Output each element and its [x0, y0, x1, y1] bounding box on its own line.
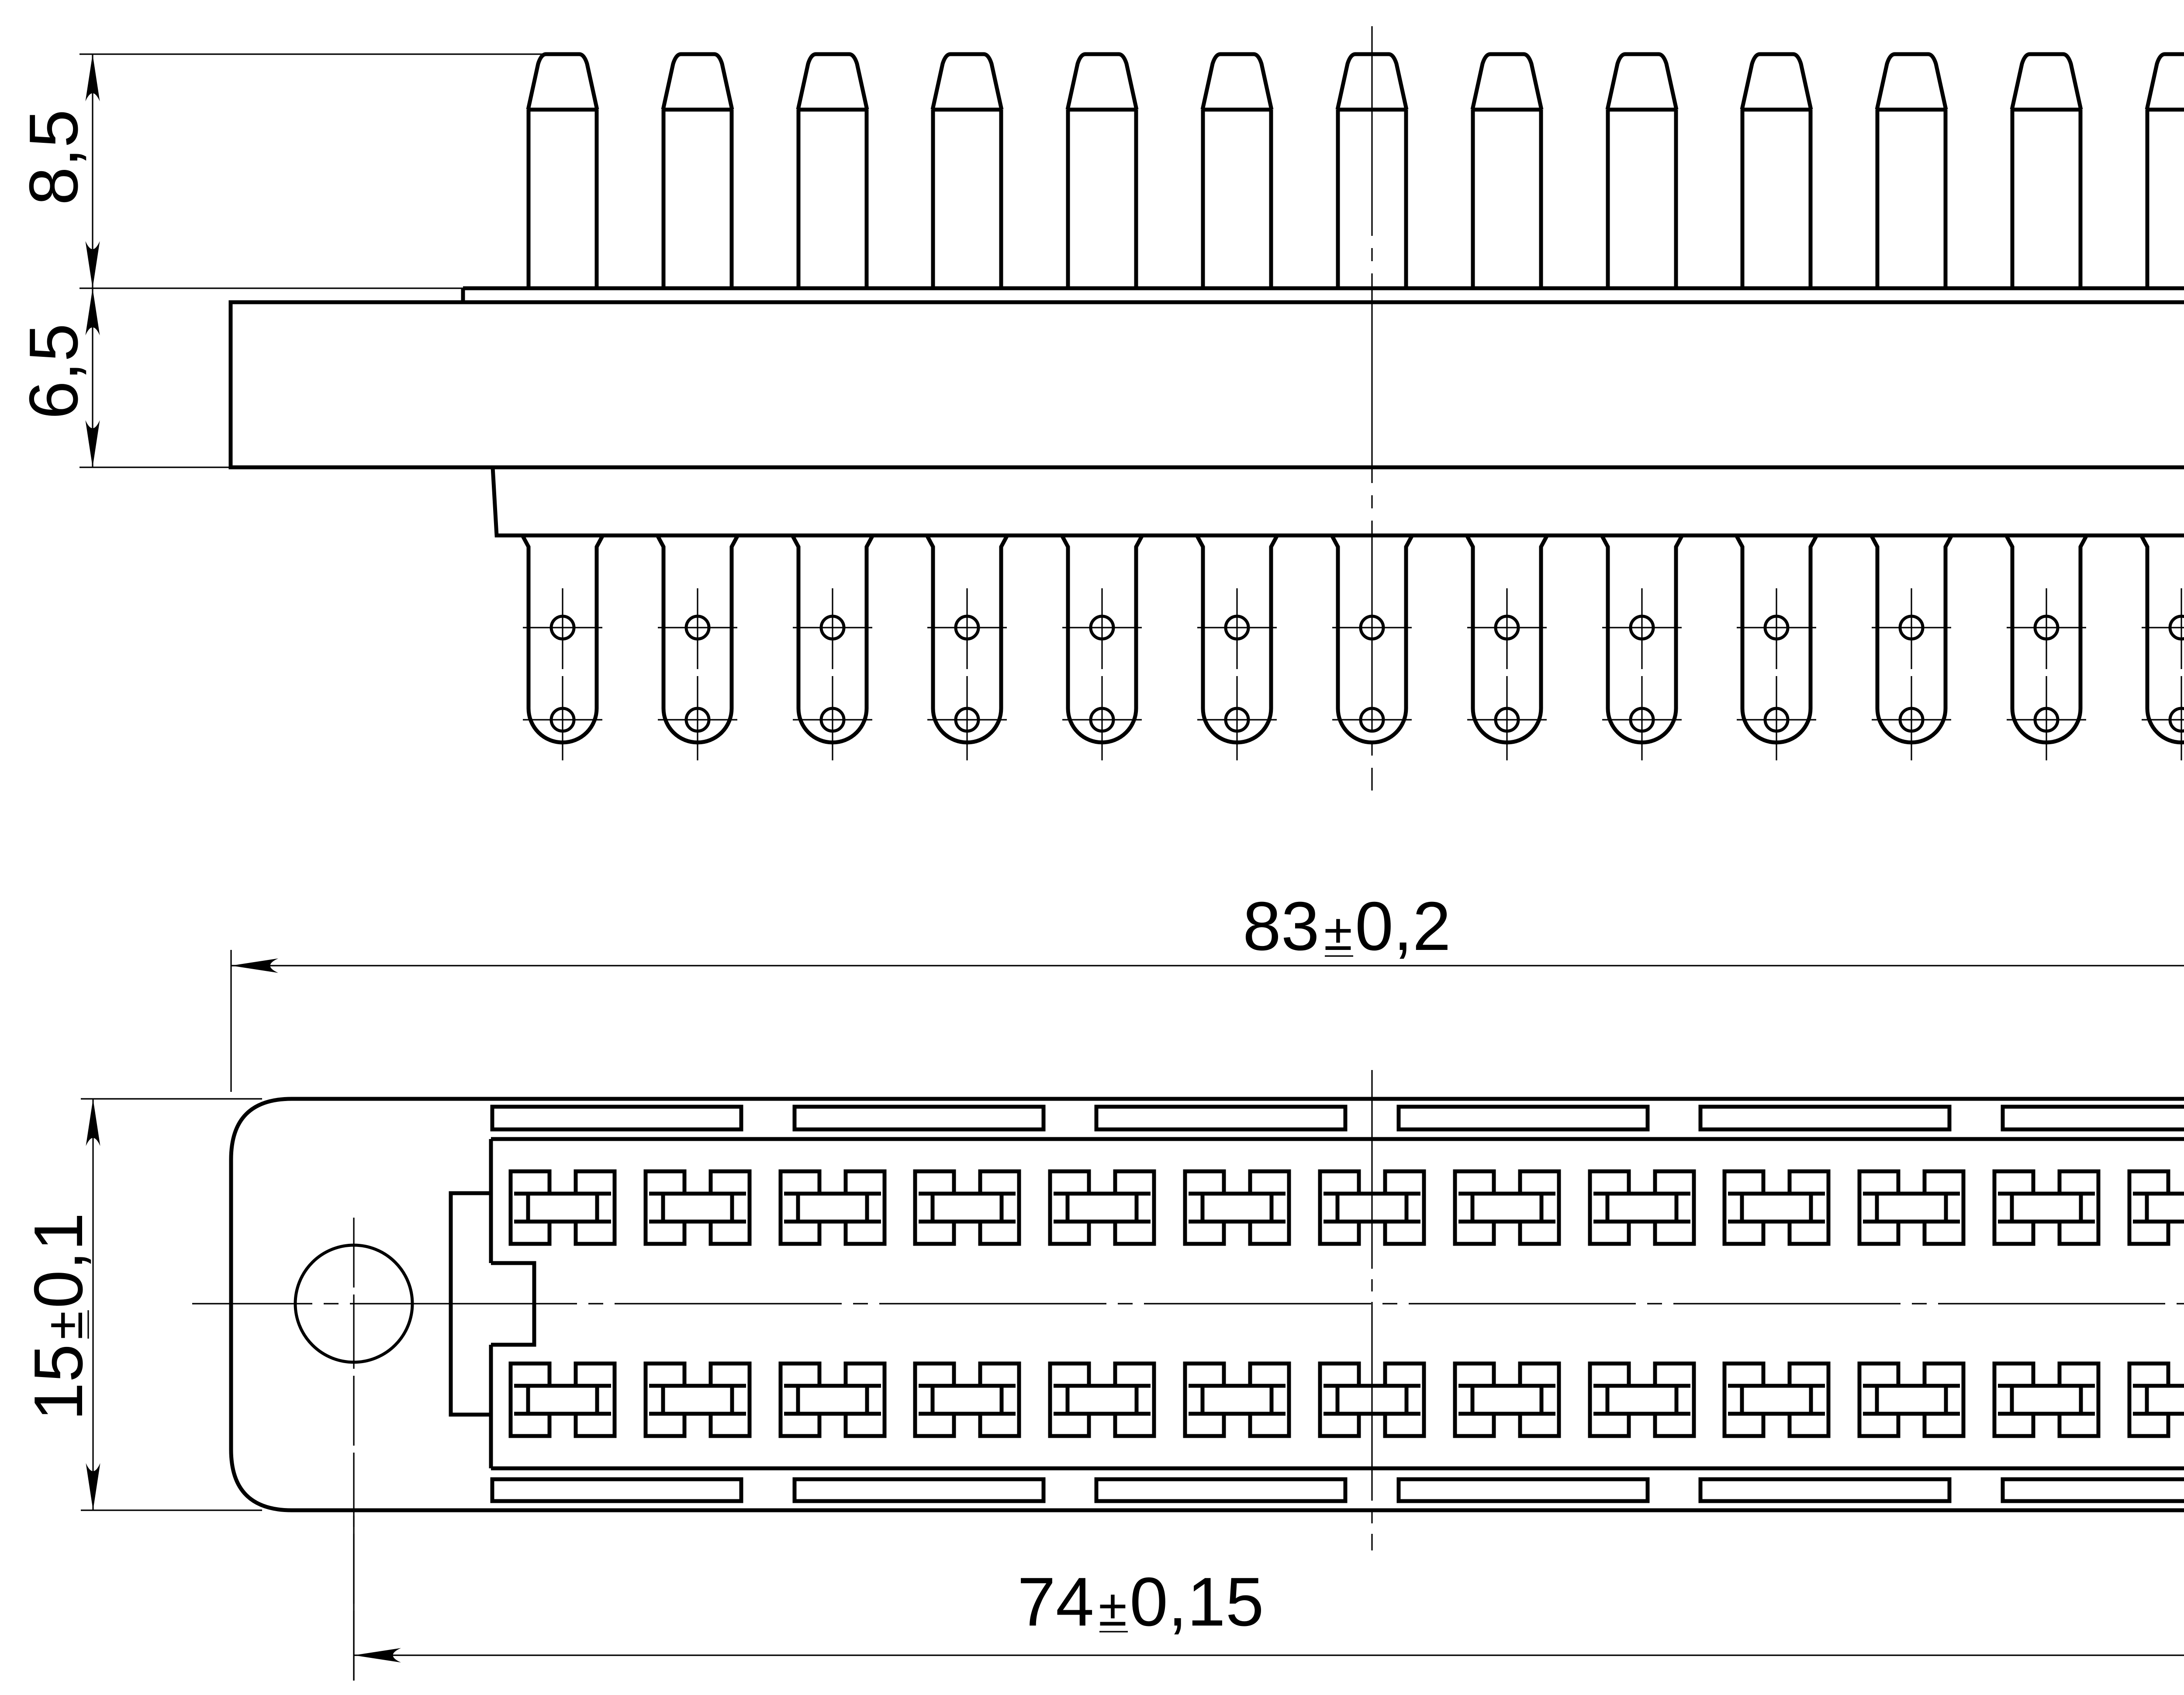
svg-text:6,5: 6,5	[15, 323, 92, 419]
svg-text:74±0,15: 74±0,15	[1017, 1564, 1264, 1640]
svg-text:8,5: 8,5	[15, 109, 92, 205]
